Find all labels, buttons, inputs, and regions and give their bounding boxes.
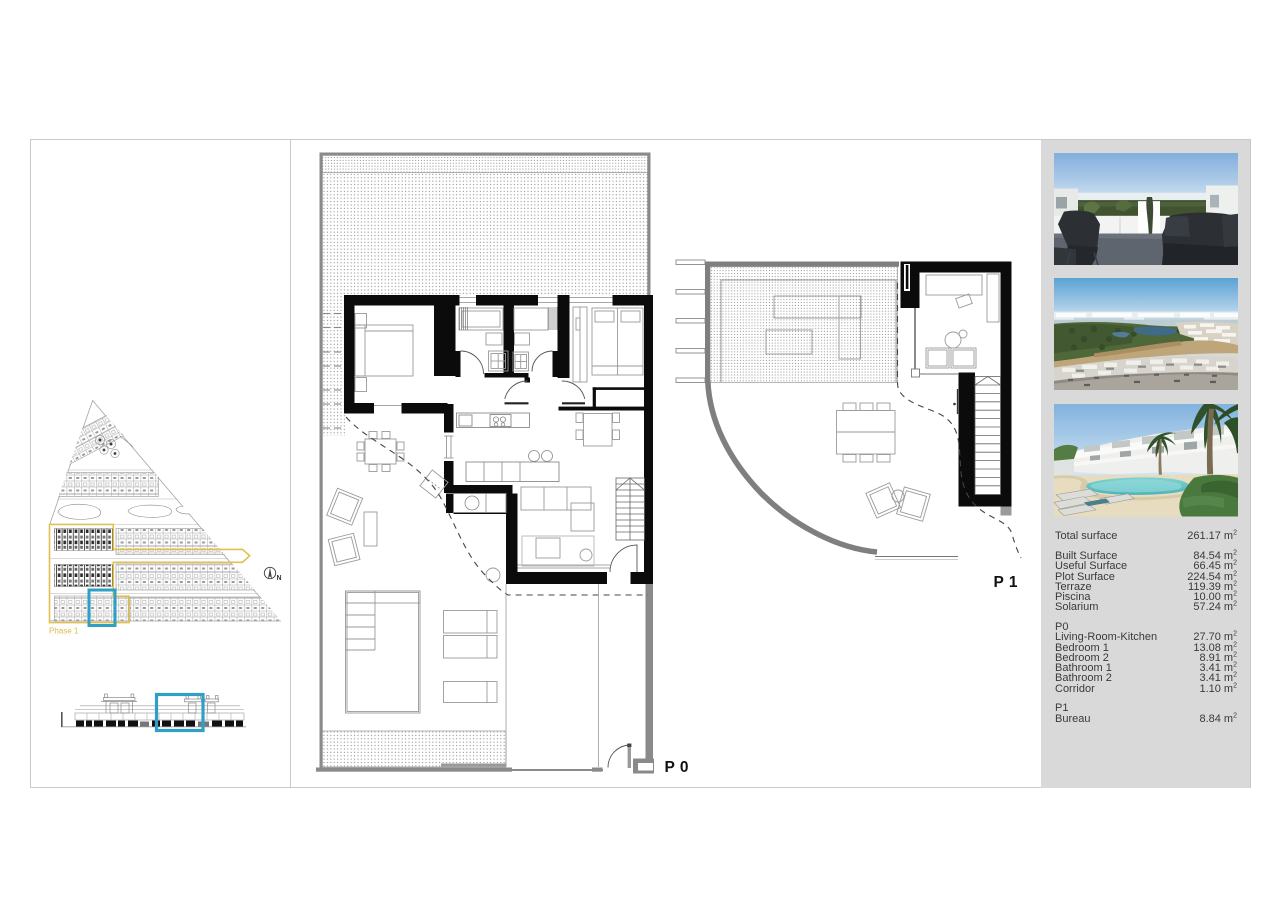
svg-text:P 1: P 1 — [994, 574, 1019, 591]
svg-text:P 0: P 0 — [665, 759, 690, 776]
svg-text:Phase 1: Phase 1 — [49, 627, 79, 636]
svg-text:N: N — [277, 575, 282, 582]
